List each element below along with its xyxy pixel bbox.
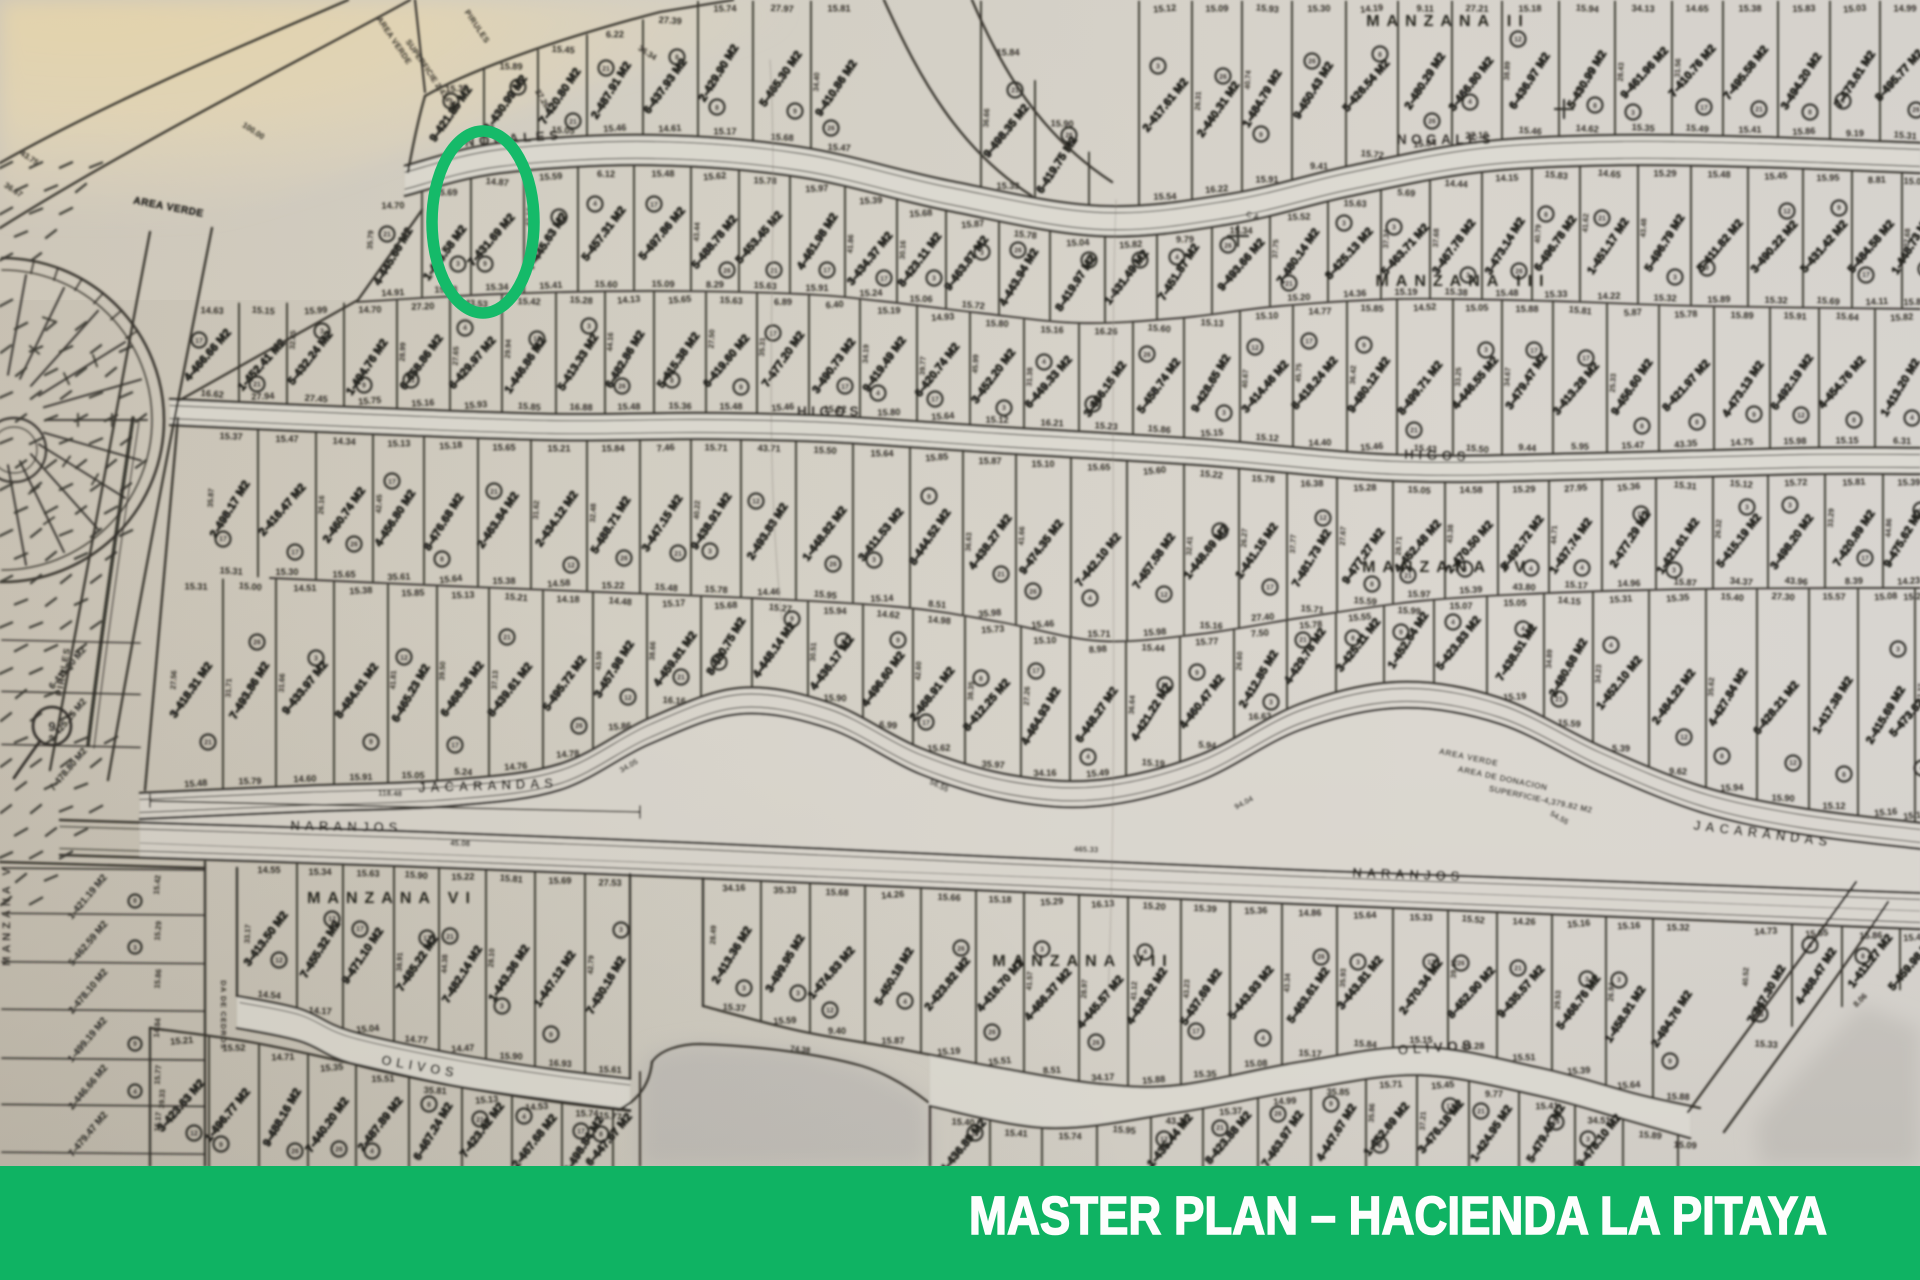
svg-text:26.94: 26.94 bbox=[1606, 981, 1616, 1001]
svg-text:15.71: 15.71 bbox=[1088, 629, 1111, 639]
svg-text:14.36: 14.36 bbox=[1343, 288, 1366, 299]
svg-text:9.41: 9.41 bbox=[1310, 161, 1328, 171]
svg-text:15.28: 15.28 bbox=[1353, 482, 1376, 493]
svg-text:15.15: 15.15 bbox=[251, 305, 275, 317]
svg-text:15.10: 15.10 bbox=[1255, 310, 1278, 321]
svg-text:15.29: 15.29 bbox=[1040, 896, 1064, 908]
svg-text:15.85: 15.85 bbox=[517, 401, 541, 413]
svg-text:45.75: 45.75 bbox=[1294, 362, 1304, 382]
svg-text:15.89: 15.89 bbox=[1638, 1129, 1662, 1141]
svg-text:43.23: 43.23 bbox=[1182, 979, 1192, 998]
svg-text:42.60: 42.60 bbox=[913, 661, 923, 680]
svg-text:9.40: 9.40 bbox=[828, 1026, 846, 1036]
svg-text:14.71: 14.71 bbox=[271, 1052, 294, 1063]
svg-text:15.10: 15.10 bbox=[1033, 635, 1056, 646]
svg-text:28.43: 28.43 bbox=[1616, 62, 1626, 81]
svg-text:14.60: 14.60 bbox=[293, 773, 316, 784]
svg-text:3: 3 bbox=[742, 985, 746, 992]
svg-text:15.90: 15.90 bbox=[499, 1051, 522, 1062]
svg-text:34.17: 34.17 bbox=[1091, 1072, 1114, 1083]
svg-text:17: 17 bbox=[1861, 555, 1869, 562]
svg-text:21: 21 bbox=[1161, 683, 1169, 690]
svg-text:4: 4 bbox=[1086, 754, 1090, 761]
svg-text:41.86: 41.86 bbox=[845, 234, 855, 253]
svg-text:3: 3 bbox=[1896, 647, 1900, 654]
svg-text:21: 21 bbox=[997, 572, 1005, 579]
svg-text:14.11: 14.11 bbox=[1865, 296, 1888, 307]
svg-text:15.77: 15.77 bbox=[152, 1065, 163, 1085]
svg-text:8: 8 bbox=[1370, 582, 1374, 589]
svg-text:15.91: 15.91 bbox=[1256, 175, 1279, 185]
svg-text:8: 8 bbox=[1544, 212, 1548, 219]
svg-text:15.33: 15.33 bbox=[1409, 912, 1432, 922]
svg-text:15.81: 15.81 bbox=[499, 873, 523, 885]
svg-text:14.98: 14.98 bbox=[927, 614, 951, 626]
svg-text:15.29: 15.29 bbox=[153, 920, 164, 941]
svg-text:15.34: 15.34 bbox=[485, 282, 509, 292]
svg-text:15.63: 15.63 bbox=[719, 295, 742, 306]
svg-text:3: 3 bbox=[1222, 410, 1226, 417]
svg-text:12: 12 bbox=[624, 695, 632, 702]
svg-text:35.86: 35.86 bbox=[1367, 1103, 1377, 1122]
svg-text:15.51: 15.51 bbox=[1512, 1052, 1535, 1062]
svg-text:15.08: 15.08 bbox=[1903, 176, 1920, 187]
svg-text:30.16: 30.16 bbox=[898, 240, 908, 259]
svg-text:4: 4 bbox=[876, 391, 880, 398]
svg-text:37.13: 37.13 bbox=[490, 670, 500, 689]
svg-text:14.23: 14.23 bbox=[1897, 575, 1920, 587]
svg-text:9: 9 bbox=[549, 1032, 553, 1039]
svg-text:37.21: 37.21 bbox=[1418, 1110, 1428, 1130]
svg-text:15.65: 15.65 bbox=[668, 294, 692, 306]
svg-text:8.51: 8.51 bbox=[928, 599, 947, 611]
svg-text:4: 4 bbox=[1580, 565, 1584, 572]
svg-text:3: 3 bbox=[1631, 110, 1635, 117]
svg-text:26: 26 bbox=[620, 555, 628, 562]
svg-text:27.50: 27.50 bbox=[707, 329, 717, 348]
svg-text:7.46: 7.46 bbox=[656, 442, 675, 454]
svg-text:15.85: 15.85 bbox=[1360, 303, 1383, 314]
svg-text:9: 9 bbox=[483, 261, 487, 268]
svg-text:15.18: 15.18 bbox=[988, 894, 1011, 904]
svg-text:9.77: 9.77 bbox=[1485, 1089, 1503, 1099]
svg-text:37.68: 37.68 bbox=[1902, 228, 1912, 247]
svg-text:4: 4 bbox=[522, 1114, 526, 1121]
svg-text:14.77: 14.77 bbox=[1308, 306, 1331, 316]
svg-text:17: 17 bbox=[577, 1128, 585, 1135]
svg-text:14.87: 14.87 bbox=[485, 176, 509, 188]
svg-text:15.39: 15.39 bbox=[1459, 584, 1482, 595]
svg-text:21: 21 bbox=[1299, 637, 1307, 644]
svg-text:15.34: 15.34 bbox=[1229, 225, 1253, 235]
svg-text:4: 4 bbox=[1175, 255, 1179, 262]
svg-text:14.99: 14.99 bbox=[1273, 1096, 1296, 1107]
svg-text:17: 17 bbox=[931, 396, 939, 403]
svg-text:17: 17 bbox=[841, 384, 849, 391]
svg-text:17: 17 bbox=[1582, 355, 1590, 362]
svg-text:3: 3 bbox=[1586, 1137, 1590, 1144]
svg-text:15.00: 15.00 bbox=[238, 581, 262, 593]
svg-text:15.32: 15.32 bbox=[1764, 295, 1787, 306]
svg-text:15.13: 15.13 bbox=[1200, 317, 1223, 328]
svg-text:12: 12 bbox=[1514, 37, 1522, 44]
svg-text:15.48: 15.48 bbox=[617, 402, 640, 412]
svg-text:HIGOS: HIGOS bbox=[1404, 447, 1470, 464]
svg-text:9.62: 9.62 bbox=[1669, 766, 1687, 777]
svg-text:15.68: 15.68 bbox=[714, 600, 737, 611]
svg-text:26: 26 bbox=[335, 1147, 343, 1154]
svg-text:15.75: 15.75 bbox=[358, 395, 382, 407]
svg-text:38.91: 38.91 bbox=[395, 951, 405, 971]
svg-text:12: 12 bbox=[1160, 1136, 1168, 1143]
svg-text:15.62: 15.62 bbox=[927, 743, 950, 754]
svg-text:3: 3 bbox=[1673, 274, 1677, 281]
svg-text:15.64: 15.64 bbox=[931, 410, 956, 422]
svg-text:26: 26 bbox=[1089, 402, 1097, 409]
svg-text:15.34: 15.34 bbox=[309, 867, 333, 877]
svg-text:15.46: 15.46 bbox=[771, 401, 795, 413]
svg-text:9: 9 bbox=[793, 109, 797, 116]
svg-text:15.16: 15.16 bbox=[1874, 806, 1898, 818]
svg-text:17: 17 bbox=[356, 926, 364, 933]
svg-text:35.98: 35.98 bbox=[978, 607, 1002, 619]
svg-text:15.21: 15.21 bbox=[504, 591, 528, 603]
svg-text:17: 17 bbox=[195, 338, 203, 345]
svg-text:15.82: 15.82 bbox=[1890, 312, 1914, 324]
svg-text:17: 17 bbox=[1192, 1028, 1200, 1035]
svg-text:35.61: 35.61 bbox=[387, 571, 410, 582]
svg-text:15.86: 15.86 bbox=[1147, 423, 1171, 435]
svg-text:15.59: 15.59 bbox=[1557, 718, 1581, 730]
svg-text:14.54: 14.54 bbox=[257, 989, 282, 1001]
svg-text:15.68: 15.68 bbox=[909, 208, 933, 220]
svg-text:15.89: 15.89 bbox=[1707, 294, 1730, 305]
svg-text:8: 8 bbox=[599, 1132, 603, 1139]
svg-text:6.31: 6.31 bbox=[1893, 436, 1911, 447]
svg-text:9: 9 bbox=[1399, 630, 1403, 637]
svg-text:15.31: 15.31 bbox=[219, 565, 243, 577]
svg-text:9: 9 bbox=[48, 719, 55, 734]
svg-text:15.23: 15.23 bbox=[1094, 420, 1118, 432]
svg-text:8: 8 bbox=[427, 1102, 431, 1109]
svg-text:15.68: 15.68 bbox=[770, 132, 793, 143]
svg-text:15.16: 15.16 bbox=[1199, 620, 1222, 631]
svg-text:39.50: 39.50 bbox=[437, 661, 447, 680]
svg-text:21: 21 bbox=[446, 934, 454, 941]
svg-text:42.79: 42.79 bbox=[586, 955, 596, 974]
svg-text:15.17: 15.17 bbox=[1298, 1048, 1321, 1059]
svg-text:27.53: 27.53 bbox=[598, 878, 621, 888]
svg-text:3: 3 bbox=[932, 276, 936, 283]
svg-text:26.31: 26.31 bbox=[1193, 90, 1203, 110]
svg-text:15.10: 15.10 bbox=[1032, 459, 1055, 469]
svg-text:27.26: 27.26 bbox=[1022, 686, 1032, 705]
svg-text:15.19: 15.19 bbox=[877, 305, 900, 315]
svg-text:9: 9 bbox=[362, 382, 366, 389]
svg-text:MANZANA II: MANZANA II bbox=[1366, 13, 1530, 30]
svg-text:35.31: 35.31 bbox=[757, 336, 767, 356]
svg-text:21: 21 bbox=[383, 231, 391, 238]
svg-text:15.20: 15.20 bbox=[1287, 292, 1310, 303]
svg-text:29.53: 29.53 bbox=[1553, 990, 1563, 1009]
svg-text:14.34: 14.34 bbox=[332, 436, 356, 447]
svg-text:12: 12 bbox=[1427, 959, 1435, 966]
svg-text:NARANJOS: NARANJOS bbox=[290, 818, 402, 835]
svg-text:8: 8 bbox=[1720, 753, 1724, 760]
svg-text:15.13: 15.13 bbox=[387, 438, 410, 448]
svg-text:6.99: 6.99 bbox=[879, 719, 898, 730]
svg-text:8.51: 8.51 bbox=[1043, 1065, 1061, 1076]
svg-text:37.27: 37.27 bbox=[1916, 683, 1920, 702]
svg-text:14.44: 14.44 bbox=[1444, 178, 1469, 190]
svg-text:9: 9 bbox=[1837, 205, 1841, 212]
svg-text:9: 9 bbox=[1329, 1101, 1333, 1108]
svg-text:21: 21 bbox=[1598, 215, 1606, 222]
svg-text:8: 8 bbox=[1695, 419, 1699, 426]
svg-text:HIGOS: HIGOS bbox=[797, 404, 863, 419]
svg-text:17: 17 bbox=[291, 549, 299, 556]
svg-text:14.65: 14.65 bbox=[1685, 3, 1708, 13]
svg-text:8: 8 bbox=[675, 55, 679, 62]
svg-text:14.96: 14.96 bbox=[1617, 578, 1640, 588]
svg-text:26.32: 26.32 bbox=[1713, 519, 1723, 538]
svg-text:14.62: 14.62 bbox=[876, 608, 900, 620]
svg-text:15.78: 15.78 bbox=[1251, 473, 1274, 484]
svg-text:15.31: 15.31 bbox=[184, 581, 207, 591]
svg-text:15.06: 15.06 bbox=[909, 294, 932, 304]
svg-text:14.15: 14.15 bbox=[1495, 173, 1518, 184]
svg-text:15.48: 15.48 bbox=[651, 169, 674, 179]
svg-text:21: 21 bbox=[1216, 1125, 1224, 1132]
svg-text:15.23: 15.23 bbox=[1903, 591, 1920, 602]
svg-text:12: 12 bbox=[328, 916, 336, 923]
svg-text:8: 8 bbox=[1705, 265, 1709, 272]
svg-text:15.98: 15.98 bbox=[1783, 436, 1806, 446]
svg-text:15.38: 15.38 bbox=[1739, 4, 1762, 14]
svg-text:12: 12 bbox=[826, 1007, 834, 1014]
svg-text:3: 3 bbox=[1617, 977, 1621, 984]
svg-text:15.93: 15.93 bbox=[464, 399, 488, 411]
svg-text:14.18: 14.18 bbox=[556, 594, 579, 604]
svg-text:43.35: 43.35 bbox=[1674, 438, 1698, 450]
svg-text:31.38: 31.38 bbox=[1025, 367, 1035, 386]
svg-text:35.33: 35.33 bbox=[773, 885, 796, 895]
svg-text:35.93: 35.93 bbox=[1338, 968, 1348, 987]
svg-text:15.17: 15.17 bbox=[152, 1112, 163, 1132]
svg-text:21: 21 bbox=[476, 1117, 484, 1124]
svg-text:34.19: 34.19 bbox=[861, 344, 871, 363]
svg-text:15.91: 15.91 bbox=[1783, 310, 1806, 321]
svg-text:15.12: 15.12 bbox=[1729, 478, 1753, 490]
svg-text:14.73: 14.73 bbox=[1754, 925, 1778, 937]
svg-text:15.97: 15.97 bbox=[1407, 589, 1430, 599]
svg-text:17: 17 bbox=[650, 202, 658, 209]
svg-text:3: 3 bbox=[587, 324, 591, 331]
svg-text:15.68: 15.68 bbox=[825, 887, 848, 898]
svg-text:25.33: 25.33 bbox=[1608, 373, 1618, 392]
svg-text:15.04: 15.04 bbox=[1066, 237, 1090, 248]
svg-text:12: 12 bbox=[1251, 345, 1259, 352]
svg-text:14.62: 14.62 bbox=[1575, 123, 1599, 135]
svg-text:15.85: 15.85 bbox=[401, 588, 424, 599]
svg-text:15.16: 15.16 bbox=[1040, 324, 1063, 335]
svg-text:15.80: 15.80 bbox=[877, 407, 900, 418]
svg-text:15.45: 15.45 bbox=[551, 44, 575, 56]
svg-text:15.16: 15.16 bbox=[1617, 920, 1640, 931]
svg-text:31.56: 31.56 bbox=[1673, 58, 1683, 77]
svg-text:21: 21 bbox=[204, 739, 212, 746]
svg-text:15.88: 15.88 bbox=[1516, 304, 1539, 314]
svg-text:15.15: 15.15 bbox=[1200, 427, 1223, 438]
svg-text:12: 12 bbox=[567, 563, 575, 570]
svg-text:15.98: 15.98 bbox=[1143, 626, 1167, 638]
svg-text:27.30: 27.30 bbox=[1771, 591, 1795, 603]
svg-text:14.17: 14.17 bbox=[308, 1005, 331, 1016]
svg-text:14.47: 14.47 bbox=[451, 1043, 475, 1055]
svg-text:4: 4 bbox=[1808, 943, 1812, 950]
svg-text:15.95: 15.95 bbox=[1816, 173, 1839, 183]
svg-text:15.39: 15.39 bbox=[859, 195, 882, 206]
svg-text:15.15: 15.15 bbox=[1836, 436, 1859, 446]
svg-text:21: 21 bbox=[1477, 1109, 1485, 1116]
svg-text:15.14: 15.14 bbox=[870, 593, 894, 604]
svg-text:15.08: 15.08 bbox=[1244, 1058, 1267, 1069]
svg-text:40.79: 40.79 bbox=[1533, 224, 1543, 243]
svg-text:15.81: 15.81 bbox=[828, 4, 851, 14]
svg-text:15.51: 15.51 bbox=[371, 1074, 394, 1084]
svg-text:37.75: 37.75 bbox=[1270, 238, 1280, 258]
svg-text:15.35: 15.35 bbox=[320, 1062, 344, 1074]
svg-text:15.47: 15.47 bbox=[276, 434, 299, 444]
svg-text:17: 17 bbox=[451, 743, 459, 750]
svg-text:15.80: 15.80 bbox=[985, 318, 1008, 329]
svg-text:15.45: 15.45 bbox=[1764, 170, 1787, 181]
svg-text:35.97: 35.97 bbox=[981, 759, 1004, 770]
svg-text:5.87: 5.87 bbox=[1624, 307, 1643, 318]
svg-text:26.27: 26.27 bbox=[1239, 528, 1249, 547]
svg-text:15.87: 15.87 bbox=[961, 218, 985, 230]
svg-text:3: 3 bbox=[872, 557, 876, 564]
svg-text:32.41: 32.41 bbox=[1184, 535, 1194, 555]
svg-text:15.12: 15.12 bbox=[1823, 801, 1846, 811]
svg-text:15.41: 15.41 bbox=[1004, 1128, 1027, 1139]
svg-text:17: 17 bbox=[533, 336, 541, 343]
svg-text:26: 26 bbox=[618, 383, 626, 390]
svg-text:12: 12 bbox=[752, 499, 760, 506]
svg-text:14.70: 14.70 bbox=[358, 304, 381, 314]
svg-text:9: 9 bbox=[1752, 412, 1756, 419]
svg-text:36.63: 36.63 bbox=[964, 532, 974, 551]
svg-text:15.39: 15.39 bbox=[1567, 1065, 1591, 1077]
svg-text:4: 4 bbox=[1088, 596, 1092, 603]
svg-text:41.66: 41.66 bbox=[1017, 526, 1027, 545]
svg-text:15.89: 15.89 bbox=[1903, 297, 1920, 308]
svg-text:15.08: 15.08 bbox=[1874, 591, 1898, 603]
svg-text:15.29: 15.29 bbox=[1654, 168, 1677, 178]
svg-text:15.42: 15.42 bbox=[517, 296, 540, 307]
svg-text:21: 21 bbox=[770, 268, 778, 275]
svg-text:14.99: 14.99 bbox=[1894, 4, 1917, 14]
svg-text:29.94: 29.94 bbox=[503, 338, 513, 358]
svg-text:8: 8 bbox=[440, 556, 444, 563]
svg-text:40.52: 40.52 bbox=[1741, 967, 1751, 986]
svg-text:MASTER PLAN – HACIENDA LA PITA: MASTER PLAN – HACIENDA LA PITAYA bbox=[969, 1186, 1827, 1246]
svg-text:17: 17 bbox=[1266, 585, 1274, 592]
svg-text:26: 26 bbox=[1428, 119, 1436, 126]
svg-text:15.94: 15.94 bbox=[823, 606, 847, 616]
svg-text:34.40: 34.40 bbox=[811, 72, 821, 91]
svg-text:21: 21 bbox=[602, 66, 610, 73]
svg-text:14.70: 14.70 bbox=[381, 200, 404, 210]
svg-text:14.78: 14.78 bbox=[556, 748, 580, 760]
svg-text:17: 17 bbox=[1637, 511, 1645, 518]
svg-text:9: 9 bbox=[219, 1142, 223, 1149]
svg-text:15.69: 15.69 bbox=[1816, 295, 1840, 307]
svg-text:15.43: 15.43 bbox=[1903, 932, 1920, 944]
svg-text:40.67: 40.67 bbox=[1240, 369, 1250, 388]
svg-text:15.38: 15.38 bbox=[493, 576, 516, 586]
svg-text:21: 21 bbox=[1285, 281, 1293, 288]
svg-text:26: 26 bbox=[1317, 954, 1325, 961]
svg-text:15.73: 15.73 bbox=[981, 624, 1005, 636]
svg-text:15.69: 15.69 bbox=[548, 876, 571, 886]
svg-text:35.79: 35.79 bbox=[365, 230, 375, 249]
svg-text:41.12: 41.12 bbox=[1129, 981, 1139, 1000]
svg-text:16.16: 16.16 bbox=[662, 695, 686, 707]
svg-text:3: 3 bbox=[1356, 959, 1360, 966]
svg-text:6.89: 6.89 bbox=[774, 297, 792, 307]
svg-text:8: 8 bbox=[715, 105, 719, 112]
svg-text:16.88: 16.88 bbox=[569, 402, 592, 413]
svg-text:28.97: 28.97 bbox=[1079, 979, 1089, 998]
svg-text:15.36: 15.36 bbox=[668, 401, 691, 412]
svg-text:15.33: 15.33 bbox=[1754, 1038, 1778, 1050]
svg-text:15.89: 15.89 bbox=[1730, 310, 1753, 321]
svg-text:27.20: 27.20 bbox=[411, 301, 434, 312]
svg-text:9: 9 bbox=[927, 494, 931, 501]
svg-text:4: 4 bbox=[463, 325, 467, 332]
svg-text:15.84: 15.84 bbox=[602, 444, 626, 454]
svg-text:8: 8 bbox=[1808, 109, 1812, 116]
svg-text:15.46: 15.46 bbox=[1360, 441, 1384, 453]
svg-text:4: 4 bbox=[1521, 626, 1525, 633]
svg-text:12: 12 bbox=[1783, 209, 1791, 216]
svg-text:15.55: 15.55 bbox=[1348, 611, 1372, 623]
svg-text:15.05: 15.05 bbox=[401, 770, 424, 780]
svg-text:16.22: 16.22 bbox=[1205, 183, 1229, 195]
svg-text:26: 26 bbox=[1014, 248, 1022, 255]
svg-text:9: 9 bbox=[1195, 670, 1199, 677]
svg-text:5.69: 5.69 bbox=[1397, 187, 1416, 199]
svg-text:12: 12 bbox=[1789, 760, 1797, 767]
svg-text:15.19: 15.19 bbox=[1141, 757, 1165, 769]
svg-text:4: 4 bbox=[1609, 642, 1613, 649]
svg-text:12: 12 bbox=[275, 957, 283, 964]
svg-text:15.48: 15.48 bbox=[654, 582, 678, 594]
svg-text:27.65: 27.65 bbox=[451, 345, 461, 365]
svg-text:32.48: 32.48 bbox=[588, 503, 598, 522]
svg-text:41.62: 41.62 bbox=[1581, 213, 1591, 232]
svg-text:15.91: 15.91 bbox=[806, 283, 829, 293]
svg-text:15.49: 15.49 bbox=[1086, 767, 1110, 779]
svg-text:15.90: 15.90 bbox=[404, 869, 428, 881]
svg-text:17: 17 bbox=[1446, 1104, 1454, 1111]
svg-text:3: 3 bbox=[314, 655, 318, 662]
svg-text:15.12: 15.12 bbox=[1255, 432, 1279, 444]
svg-text:5.95: 5.95 bbox=[1571, 441, 1589, 452]
svg-text:9.44: 9.44 bbox=[1518, 442, 1537, 453]
svg-text:26: 26 bbox=[957, 946, 965, 953]
